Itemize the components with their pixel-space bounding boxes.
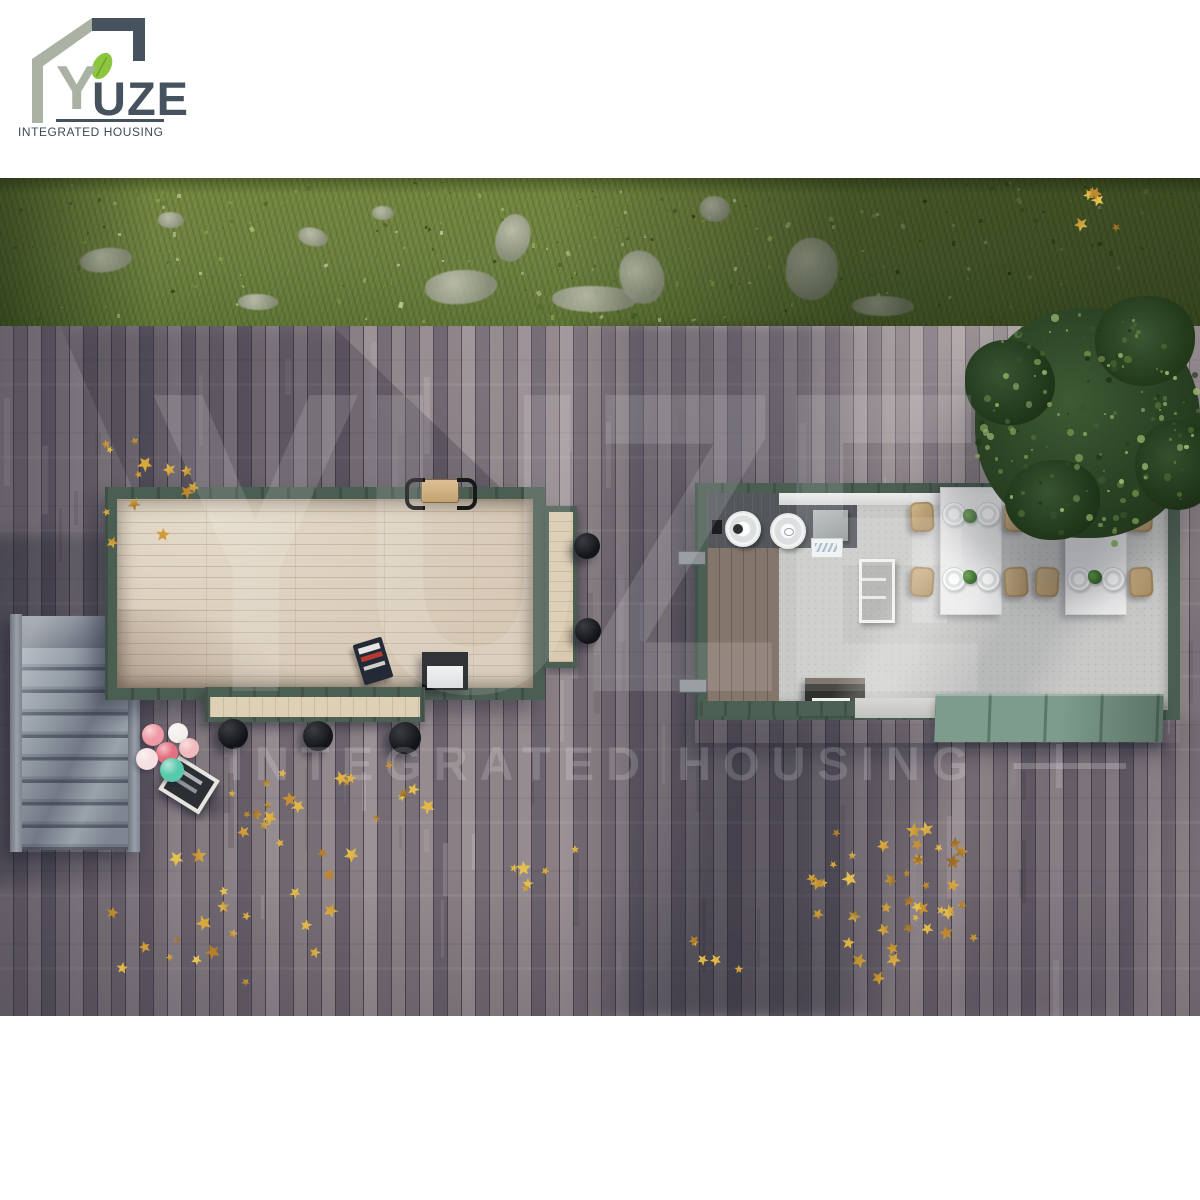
autumn-leaf: [919, 922, 933, 936]
autumn-leaf: [242, 911, 252, 921]
autumn-leaf: [904, 821, 925, 842]
autumn-leaf: [901, 922, 914, 935]
autumn-leaf: [274, 838, 286, 850]
autumn-leaf: [515, 859, 533, 877]
autumn-leaf: [885, 940, 902, 957]
autumn-leaf: [204, 943, 224, 963]
autumn-leaf: [871, 971, 886, 986]
autumn-leaf: [946, 878, 960, 892]
autumn-leaf: [126, 494, 143, 511]
autumn-leaf: [227, 789, 236, 798]
autumn-leaf: [404, 782, 420, 798]
autumn-leaf: [831, 828, 842, 839]
autumn-leaf: [920, 879, 932, 891]
autumn-leaf: [1110, 221, 1121, 232]
autumn-leaf: [344, 848, 359, 863]
autumn-leaf: [333, 770, 350, 787]
autumn-leaf: [937, 923, 955, 941]
autumn-leaf: [967, 931, 979, 943]
autumn-leaf: [829, 860, 838, 869]
autumn-leaf: [168, 851, 184, 867]
autumn-leaf: [276, 768, 287, 779]
autumn-leaf: [709, 955, 722, 968]
logo-underline: [56, 119, 164, 122]
autumn-leaf: [911, 838, 924, 851]
autumn-leaf: [371, 813, 382, 824]
autumn-leaf: [135, 453, 156, 474]
autumn-leaf: [115, 961, 130, 976]
autumn-leaf: [734, 964, 745, 975]
autumn-leaf: [695, 952, 710, 967]
autumn-leaf: [917, 821, 935, 839]
autumn-leaf: [138, 939, 152, 953]
autumn-leaf: [902, 869, 912, 879]
autumn-leaf: [840, 869, 860, 889]
autumn-leaf: [180, 464, 193, 477]
autumn-leaf: [229, 929, 238, 938]
autumn-leaf: [810, 908, 825, 923]
logo-brand-rest: UZE: [92, 75, 189, 122]
autumn-leaf: [236, 826, 249, 839]
autumn-leaf: [262, 800, 273, 811]
autumn-leaf: [261, 777, 273, 789]
autumn-leaf: [876, 839, 890, 853]
autumn-leaf: [1073, 217, 1089, 233]
aerial-photo: YUZE INTEGRATED HOUSING: [0, 178, 1200, 1016]
autumn-leaf: [876, 921, 893, 938]
autumn-leaf: [570, 844, 579, 853]
autumn-leaf: [216, 900, 230, 914]
autumn-leaves-layer: [0, 178, 1200, 1016]
autumn-leaf: [884, 949, 903, 968]
autumn-leaf: [242, 810, 251, 819]
autumn-leaf: [842, 936, 856, 950]
autumn-leaf: [307, 945, 322, 960]
autumn-leaf: [846, 851, 857, 862]
autumn-leaf: [322, 867, 337, 882]
brand-logo: Y UZE INTEGRATED HOUSING: [14, 6, 194, 148]
autumn-leaf: [189, 846, 210, 867]
autumn-leaf: [195, 913, 216, 934]
autumn-leaf: [165, 954, 174, 963]
autumn-leaf: [850, 952, 867, 969]
autumn-leaf: [509, 863, 519, 873]
autumn-leaf: [287, 885, 302, 900]
autumn-leaf: [189, 954, 202, 967]
autumn-leaf: [129, 436, 141, 448]
autumn-leaf: [882, 870, 900, 888]
autumn-leaf: [845, 907, 863, 925]
autumn-leaf: [316, 846, 330, 860]
autumn-leaf: [106, 907, 119, 920]
autumn-leaf: [320, 901, 339, 920]
autumn-leaf: [384, 760, 395, 771]
logo-tagline: INTEGRATED HOUSING: [18, 125, 163, 139]
autumn-leaf: [162, 463, 178, 479]
autumn-leaf: [101, 506, 112, 517]
autumn-leaf: [172, 934, 182, 944]
autumn-leaf: [934, 843, 944, 853]
autumn-leaf: [880, 902, 891, 913]
autumn-leaf: [910, 913, 920, 923]
autumn-leaf: [104, 535, 120, 551]
autumn-leaf: [250, 808, 264, 822]
autumn-leaf: [540, 866, 551, 877]
autumn-leaf: [298, 918, 314, 934]
autumn-leaf: [133, 470, 143, 480]
autumn-leaf: [155, 526, 171, 542]
page: Y UZE INTEGRATED HOUSING: [0, 0, 1200, 1200]
autumn-leaf: [686, 933, 701, 948]
autumn-leaf: [241, 977, 252, 988]
autumn-leaf: [218, 886, 230, 898]
autumn-leaf: [418, 796, 438, 816]
